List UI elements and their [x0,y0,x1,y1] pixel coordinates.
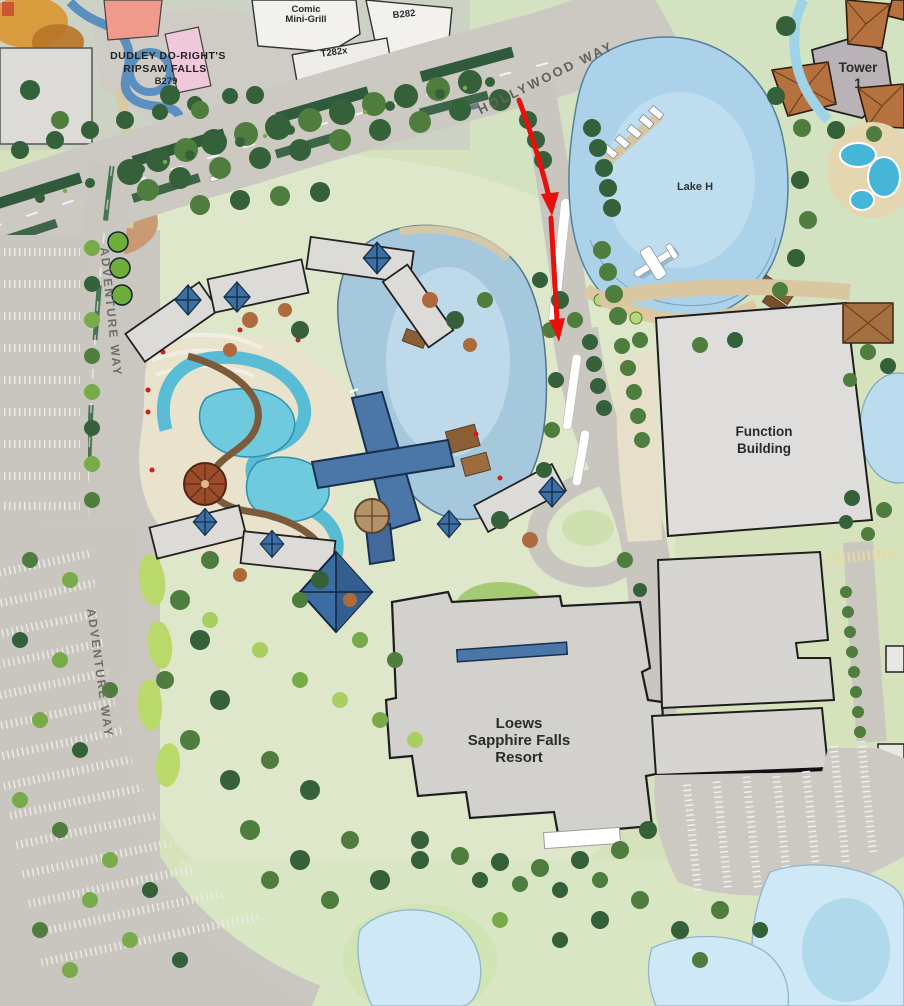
label-resort-line1: Loews [496,715,543,732]
label-ripsaw-falls-line1: DUDLEY DO-RIGHT'S [110,50,226,62]
label-function-building-line2: Building [737,441,791,456]
label-b279: B279 [155,76,178,87]
site-plan-canvas: DUDLEY DO-RIGHT'S RIPSAW FALLS B279 Comi… [0,0,904,1006]
park-side-building [0,48,92,144]
function-building [656,303,872,536]
label-ripsaw-falls-line2: RIPSAW FALLS [123,63,207,75]
label-resort-line3: Resort [495,749,543,766]
label-resort-line2: Sapphire Falls [468,732,571,749]
label-tower1-line1: Tower [839,60,878,75]
support-building-1 [658,552,834,708]
support-building-2 [652,708,828,776]
label-function-building-line1: Function [736,424,793,439]
label-lake-h: Lake H [677,181,713,193]
label-tower1-line2: 1 [854,76,862,91]
thatch-hut [184,463,226,505]
pool [200,389,295,457]
site-plan-map: DUDLEY DO-RIGHT'S RIPSAW FALLS B279 Comi… [0,0,904,1006]
edge-building [886,646,904,672]
ripsaw-salmon-building [104,0,162,40]
label-comic-grill-line2: Mini-Grill [285,14,326,25]
